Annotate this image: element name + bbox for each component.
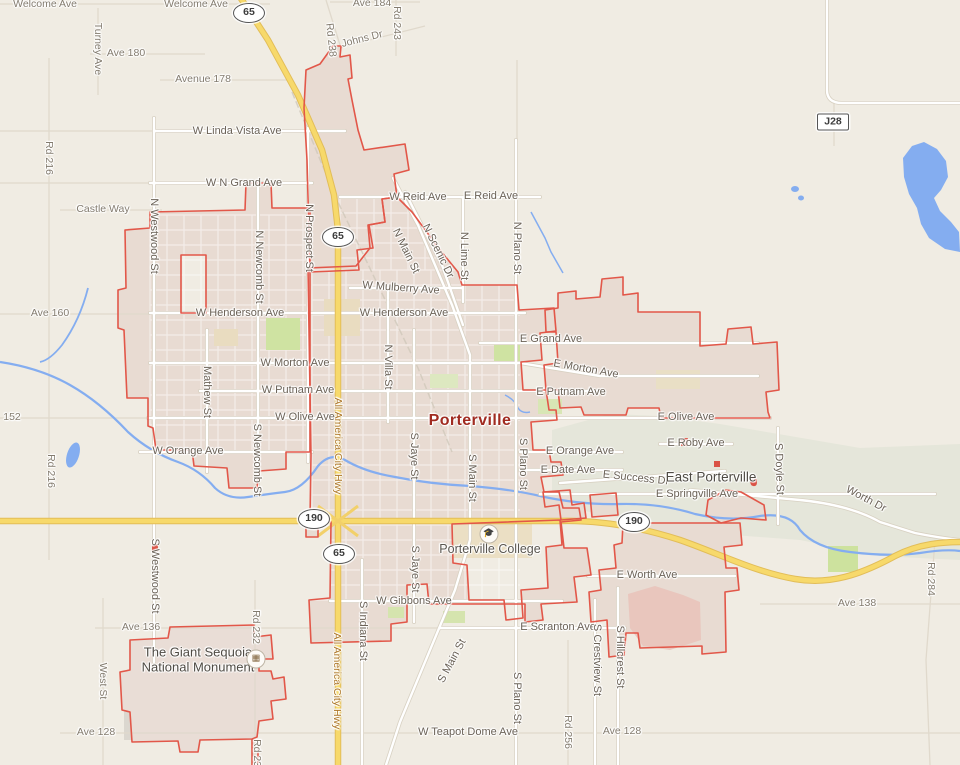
pond: [798, 196, 804, 201]
map-graphics: [0, 0, 960, 765]
map-canvas[interactable]: Welcome AveWelcome AveAve 184Rd 243Johns…: [0, 0, 960, 765]
monument-icon[interactable]: ▦: [247, 650, 266, 669]
route-shield-190: 190: [298, 509, 330, 529]
creek: [531, 212, 563, 273]
pond: [791, 186, 799, 192]
river-branch: [40, 288, 88, 362]
pond: [63, 441, 82, 469]
route-shield-190: 190: [618, 512, 650, 532]
route-shield-j28: J28: [817, 114, 849, 131]
route-shield-65: 65: [322, 227, 354, 247]
route-shield-65: 65: [323, 544, 355, 564]
route-shield-65: 65: [233, 3, 265, 23]
lake-success: [903, 142, 960, 252]
college-icon[interactable]: 🎓: [480, 525, 499, 544]
